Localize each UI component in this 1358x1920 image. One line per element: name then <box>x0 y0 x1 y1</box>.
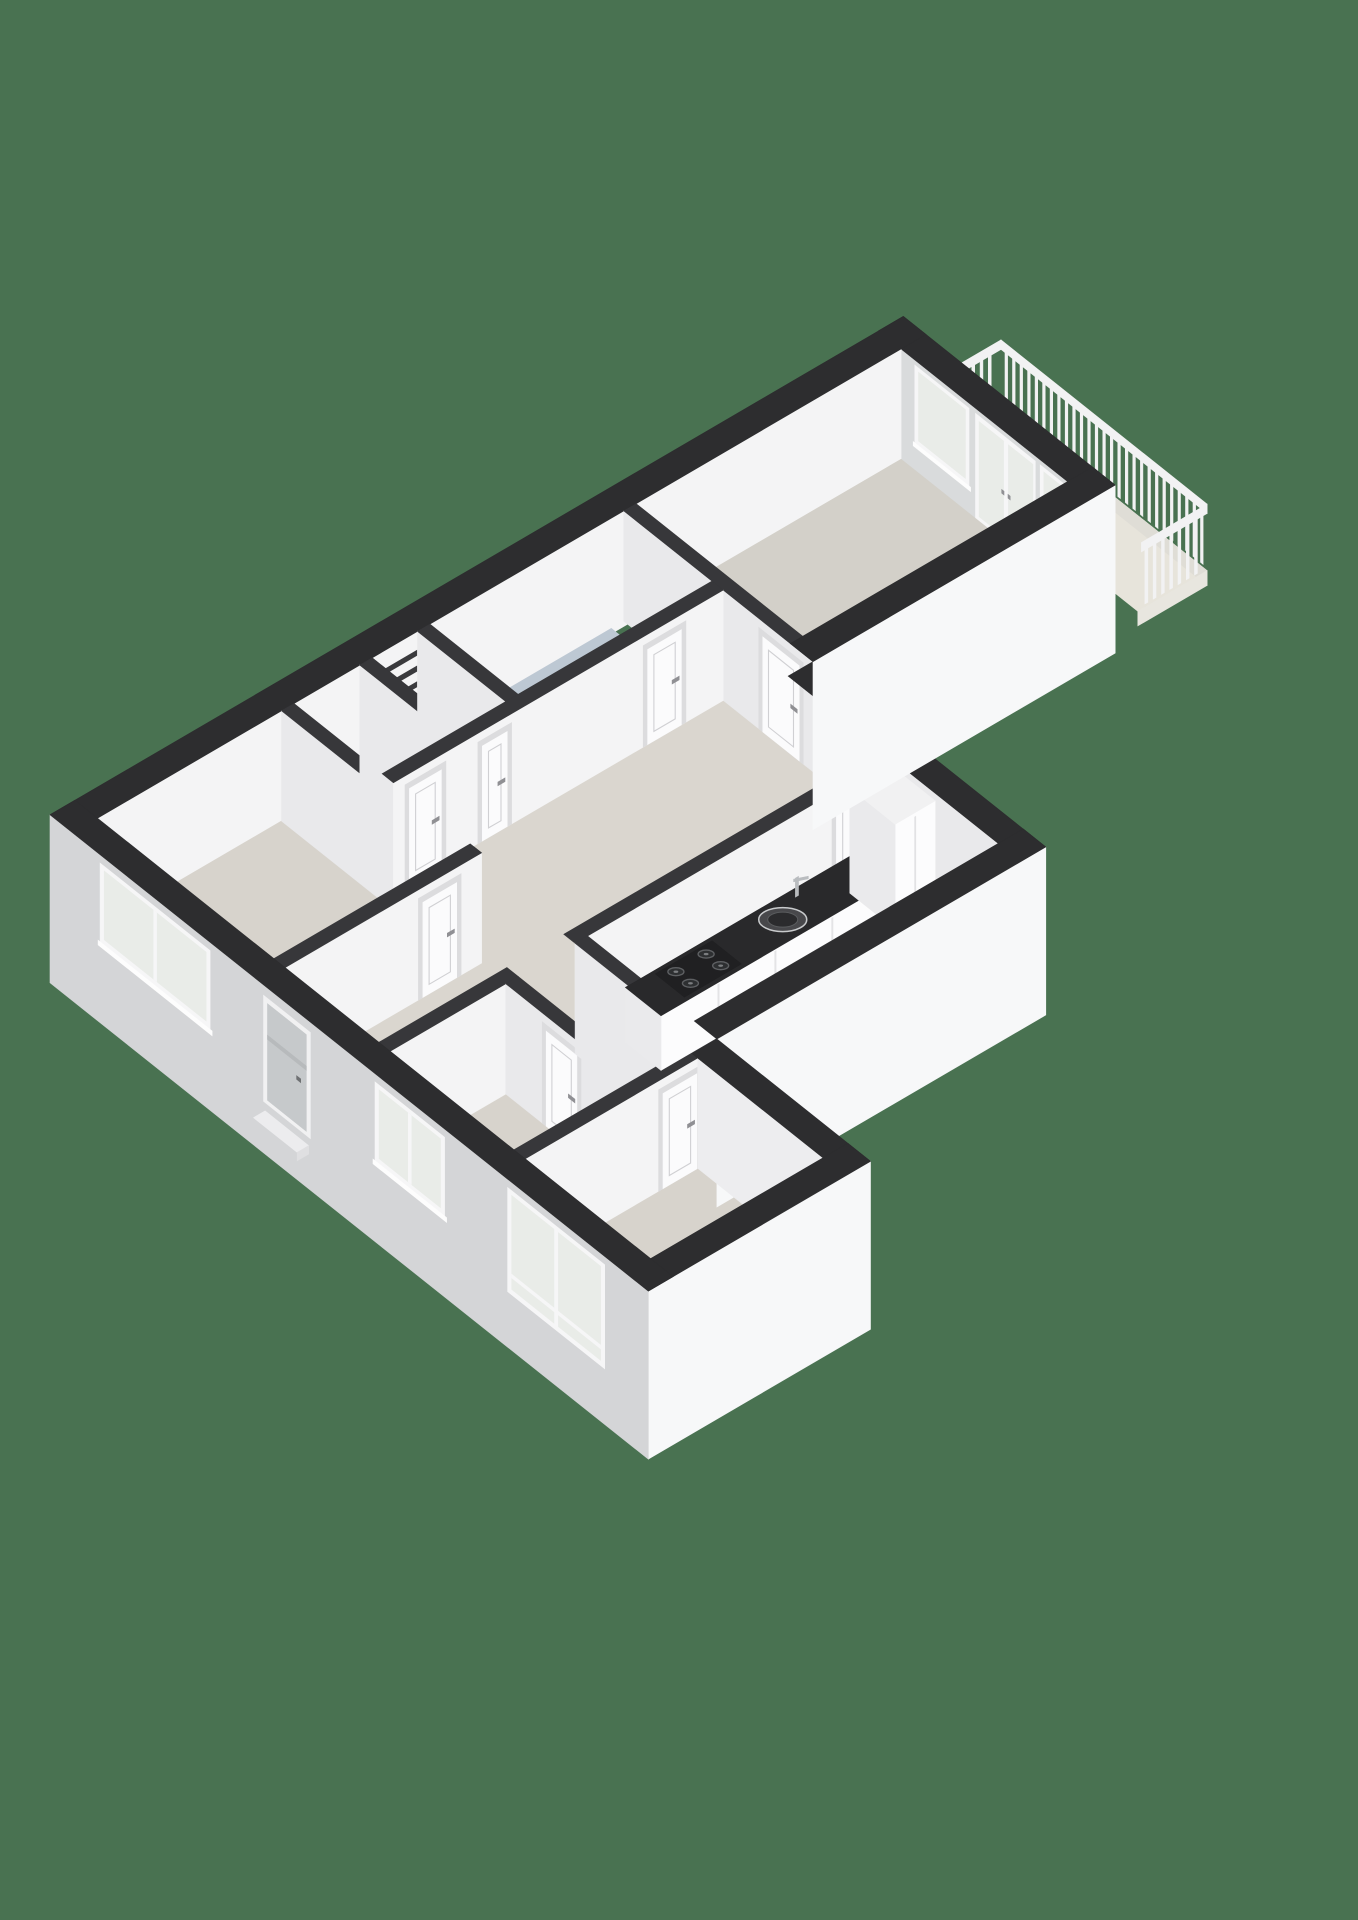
floorplan-3d-view <box>0 0 1358 1920</box>
floorplan-stage <box>0 0 1358 1920</box>
closet-door <box>478 723 512 844</box>
kitchen-sink <box>759 908 807 932</box>
